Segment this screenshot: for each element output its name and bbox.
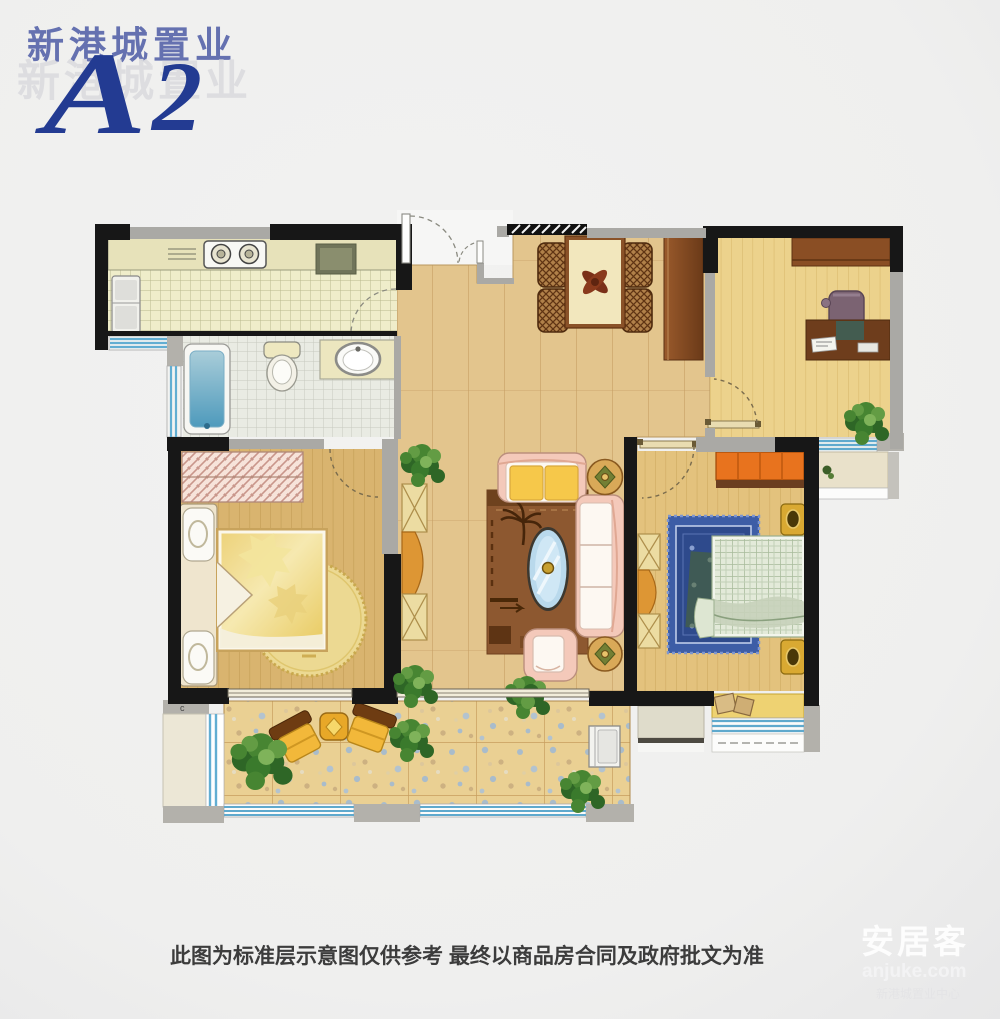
svg-text:anjuke.com: anjuke.com (862, 961, 967, 982)
svg-text:2: 2 (150, 41, 202, 152)
svg-text:A: A (34, 28, 147, 159)
svg-text:新港城置业中心: 新港城置业中心 (876, 986, 960, 1001)
svg-text:此图为标准层示意图仅供参考 最终以商品房合同及政府批文为准: 此图为标准层示意图仅供参考 最终以商品房合同及政府批文为准 (170, 944, 764, 968)
svg-text:c: c (180, 703, 185, 713)
svg-text:安居客: 安居客 (861, 923, 969, 960)
